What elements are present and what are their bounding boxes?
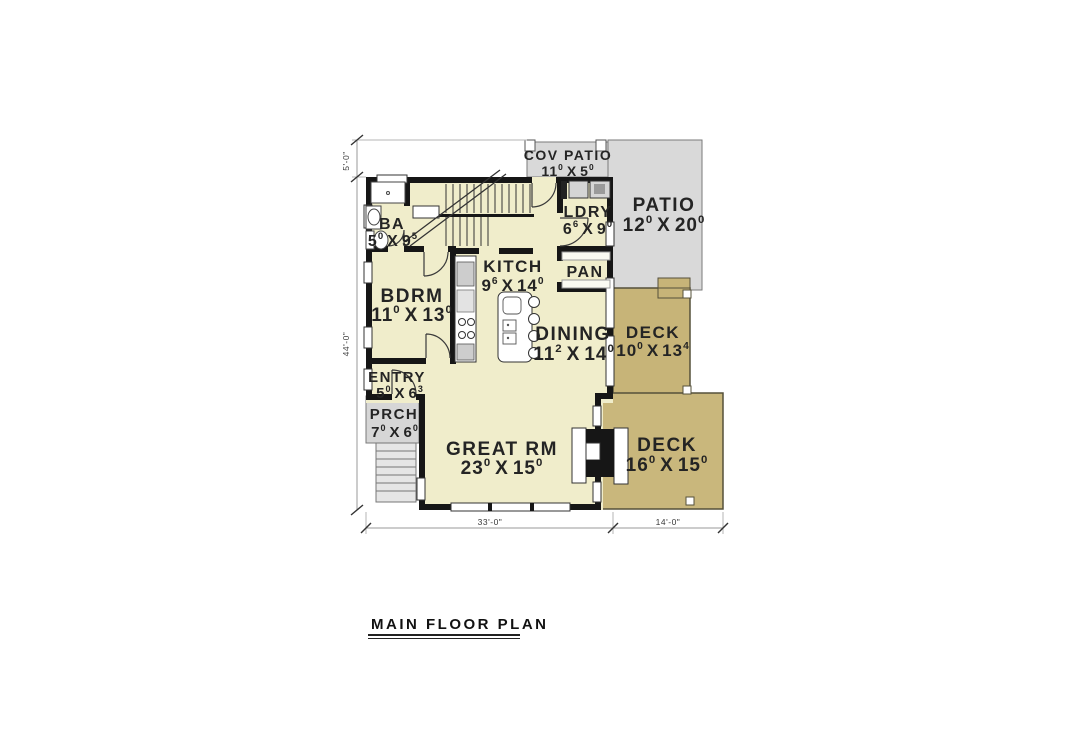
dim-dining: 112X140: [533, 343, 615, 365]
washer-icon: [569, 181, 588, 198]
wall: [448, 246, 456, 252]
dim-deck-upper: 100X134: [616, 341, 690, 360]
window-icon: [593, 406, 601, 426]
dim-patio: 120X200: [623, 214, 706, 236]
dishwasher-icon: [457, 344, 474, 360]
label-kitch: KITCH: [483, 257, 542, 276]
dim-bdrm: 110X130: [371, 304, 453, 326]
dim-great-rm: 230X150: [461, 457, 544, 479]
deck-post-icon: [686, 497, 694, 505]
floor-plan-page: 5'-0" 44'-0" 33'-0" 14'-0" COV PATIO 110…: [0, 0, 1070, 754]
wall: [455, 248, 479, 254]
pantry-shelf-icon: [562, 280, 610, 288]
window-mullion: [530, 503, 534, 511]
pantry-shelf-icon: [562, 252, 610, 260]
dim-ba: 50X95: [368, 231, 418, 250]
label-patio: PATIO: [633, 195, 696, 216]
stair-landing: [413, 206, 439, 218]
label-pan: PAN: [566, 264, 603, 281]
deck-post-icon: [683, 386, 691, 394]
dim-ldry: 66X90: [563, 219, 613, 238]
label-dining: DINING: [535, 324, 611, 345]
wall: [557, 246, 613, 252]
wall: [366, 358, 426, 364]
deck-post-icon: [683, 290, 691, 298]
window-icon: [417, 478, 425, 500]
floor-plan-canvas: 5'-0" 44'-0" 33'-0" 14'-0" COV PATIO 110…: [0, 0, 1070, 754]
dryer-door-icon: [594, 184, 605, 194]
laundry-closet: [561, 181, 567, 199]
dim-deck-lower: 160X150: [626, 454, 709, 476]
window-icon: [593, 482, 601, 502]
window-icon: [451, 503, 570, 511]
wall: [499, 248, 533, 254]
label-deck-lower: DECK: [637, 435, 697, 456]
window-mullion: [488, 503, 492, 511]
label-cov-patio: COV PATIO: [524, 147, 612, 163]
dim-label-bottom-deck: 14'-0": [656, 517, 681, 527]
label-bdrm: BDRM: [381, 286, 444, 307]
dim-entry: 50X63: [376, 384, 424, 402]
label-prch: PRCH: [370, 406, 419, 423]
porch-steps-icon: [376, 443, 416, 502]
title-underline: [368, 638, 520, 639]
dim-label-bottom-main: 33'-0": [478, 517, 503, 527]
window-icon: [364, 327, 372, 348]
label-ldry: LDRY: [564, 204, 613, 221]
dim-label-left: 44'-0": [341, 332, 351, 357]
oven-icon: [457, 290, 474, 312]
dim-kitch: 96X140: [481, 276, 544, 295]
dim-cov-patio: 110X50: [541, 162, 594, 179]
plan-title: MAIN FLOOR PLAN: [368, 616, 549, 639]
plan-title-text: MAIN FLOOR PLAN: [371, 616, 549, 633]
window-icon: [364, 262, 372, 283]
title-underline: [368, 634, 520, 636]
dim-label-top-left: 5'-0": [341, 151, 351, 170]
label-deck-upper: DECK: [626, 323, 680, 342]
island-sink-icon: [503, 297, 521, 314]
dim-prch: 70X60: [371, 423, 419, 441]
fridge-icon: [457, 262, 474, 286]
shower-icon: [371, 182, 405, 203]
fireplace-icon: [572, 428, 628, 484]
